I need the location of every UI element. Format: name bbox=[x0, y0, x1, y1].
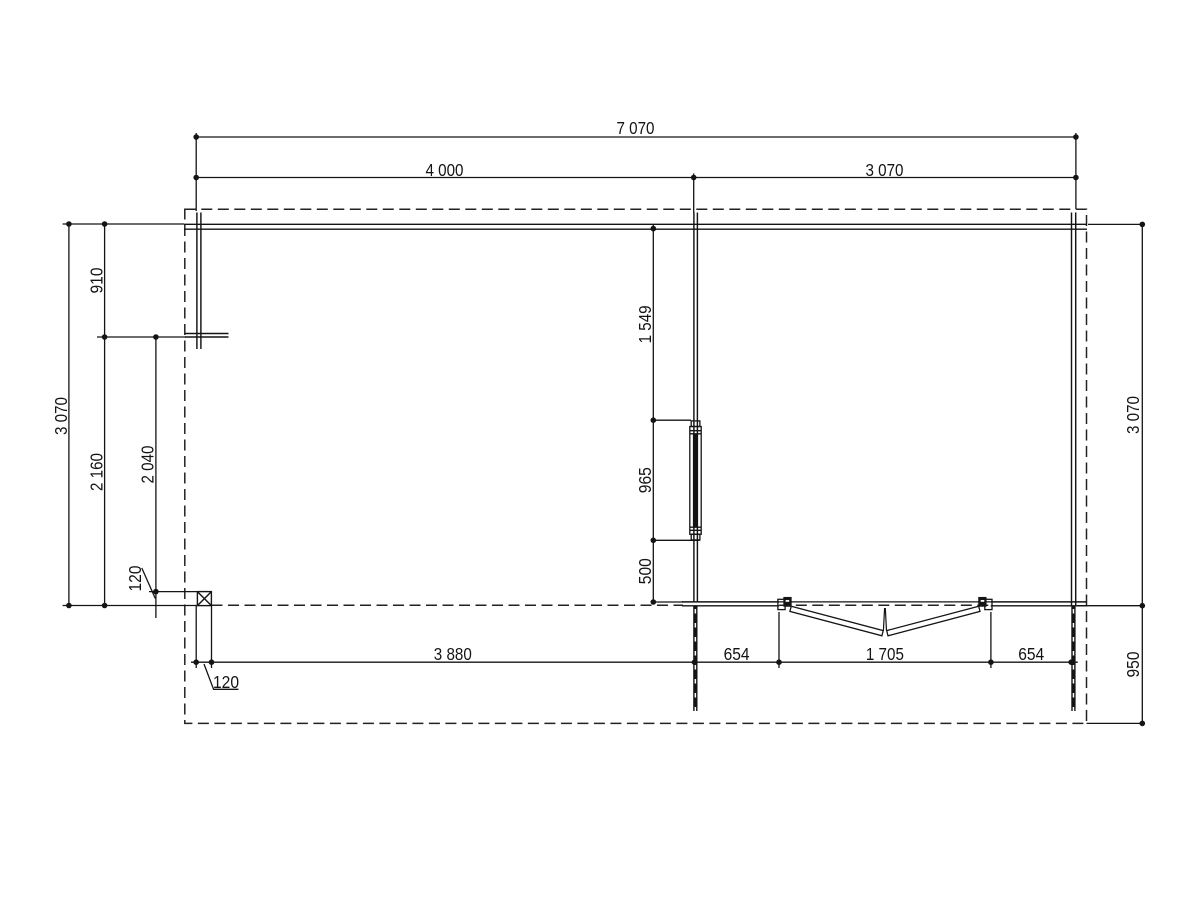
svg-text:3 070: 3 070 bbox=[51, 397, 71, 435]
svg-text:1 549: 1 549 bbox=[635, 305, 655, 343]
svg-text:2 160: 2 160 bbox=[86, 453, 106, 491]
svg-text:3 070: 3 070 bbox=[866, 160, 904, 180]
svg-text:950: 950 bbox=[1123, 651, 1143, 677]
svg-text:654: 654 bbox=[724, 644, 750, 664]
svg-text:2 040: 2 040 bbox=[138, 445, 158, 483]
svg-text:7 070: 7 070 bbox=[617, 118, 655, 138]
svg-text:910: 910 bbox=[86, 267, 106, 293]
svg-text:3 070: 3 070 bbox=[1123, 396, 1143, 434]
svg-text:4 000: 4 000 bbox=[426, 160, 464, 180]
svg-text:3 880: 3 880 bbox=[434, 644, 472, 664]
svg-text:500: 500 bbox=[635, 558, 655, 584]
svg-text:120: 120 bbox=[213, 672, 239, 692]
svg-text:965: 965 bbox=[635, 467, 655, 493]
svg-text:654: 654 bbox=[1018, 644, 1044, 664]
svg-text:1 705: 1 705 bbox=[866, 644, 904, 664]
svg-text:120: 120 bbox=[125, 565, 145, 591]
